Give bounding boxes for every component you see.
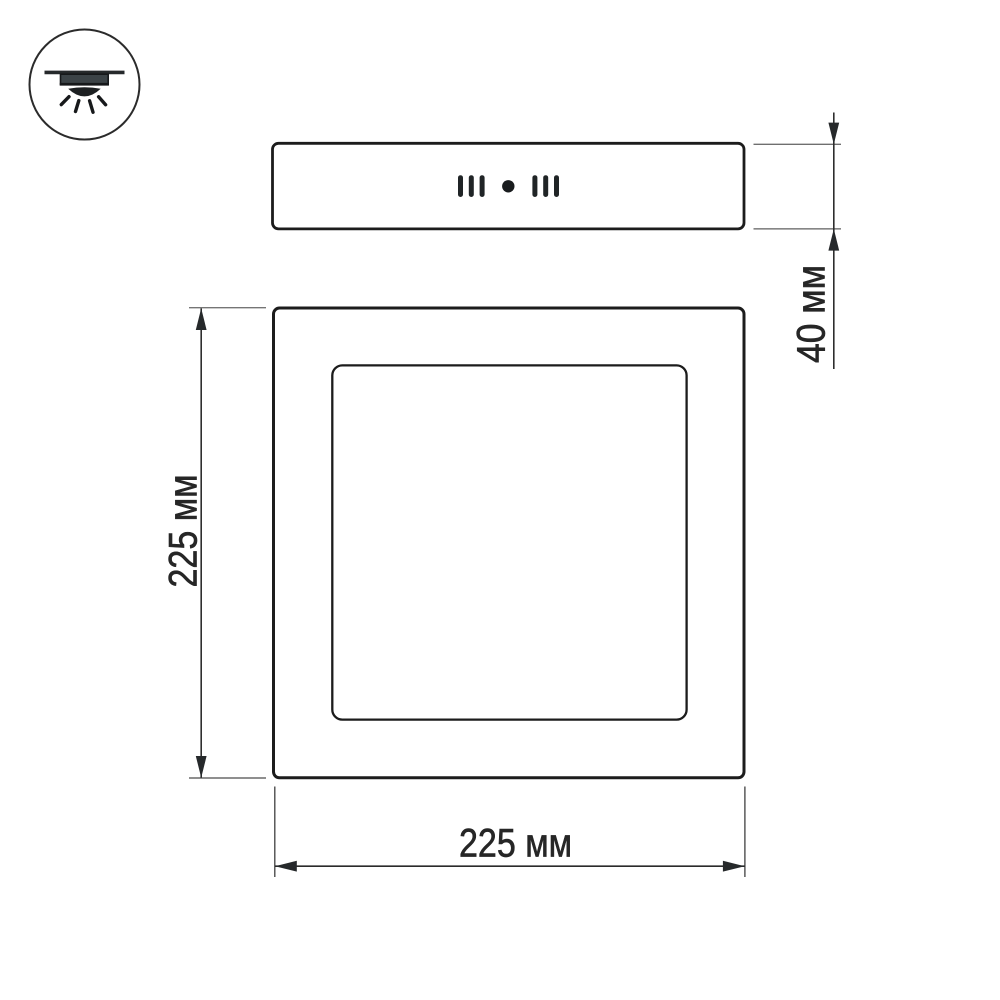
svg-text:40 мм: 40 мм xyxy=(790,265,834,363)
svg-text:225 мм: 225 мм xyxy=(162,475,206,588)
svg-text:225 мм: 225 мм xyxy=(459,822,572,866)
